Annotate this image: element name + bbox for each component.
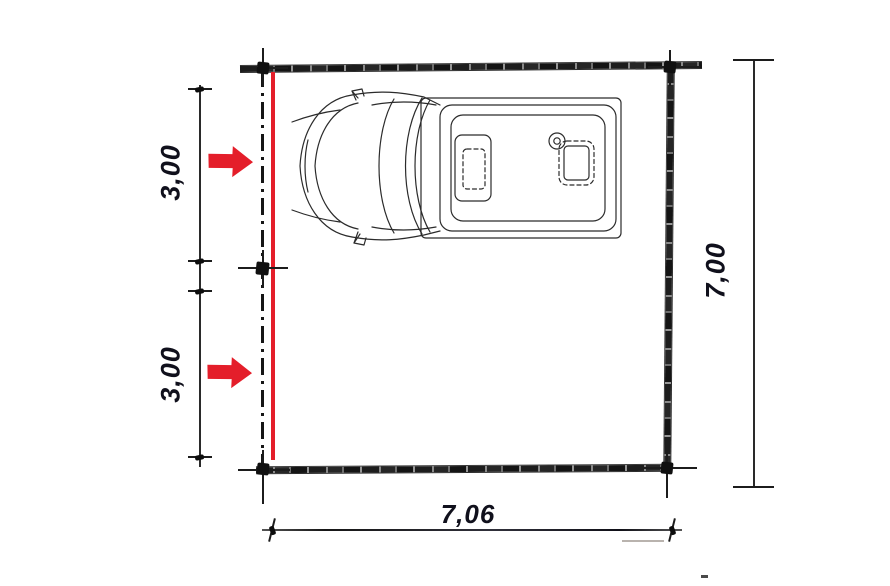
dim-label-bottom: 7,06 <box>408 501 528 527</box>
dimension-line-right <box>753 60 755 487</box>
dim-tick <box>195 86 205 93</box>
post-top-right <box>663 60 676 73</box>
post-top-left <box>256 61 269 74</box>
dim-label-left-top: 3,00 <box>158 133 185 213</box>
red-opening-line <box>271 72 275 460</box>
post-bottom-left <box>256 462 269 475</box>
dim-tick <box>195 454 205 461</box>
stray-mark <box>622 540 664 542</box>
dim-tick <box>195 288 205 295</box>
dimension-line-bottom <box>262 529 682 531</box>
post-tick <box>262 450 264 504</box>
wall-bottom <box>256 464 672 475</box>
floor-plan-canvas: 3,00 3,00 7,00 7,06 <box>0 0 890 586</box>
wall-top <box>240 61 702 73</box>
dimension-line-left <box>199 85 201 467</box>
red-right-arrow-icon <box>205 354 255 392</box>
camper-van-top-view <box>288 88 630 246</box>
wall-right <box>663 66 675 470</box>
stray-mark <box>701 575 708 578</box>
post-middle-left <box>255 261 269 275</box>
dim-label-left-bottom: 3,00 <box>158 335 185 415</box>
post-bottom-right <box>660 461 673 474</box>
red-right-arrow-icon <box>206 143 256 181</box>
dim-end-bar <box>733 59 774 61</box>
dim-label-right: 7,00 <box>703 231 730 311</box>
dim-tick <box>195 258 205 265</box>
dim-end-bar <box>733 486 774 488</box>
